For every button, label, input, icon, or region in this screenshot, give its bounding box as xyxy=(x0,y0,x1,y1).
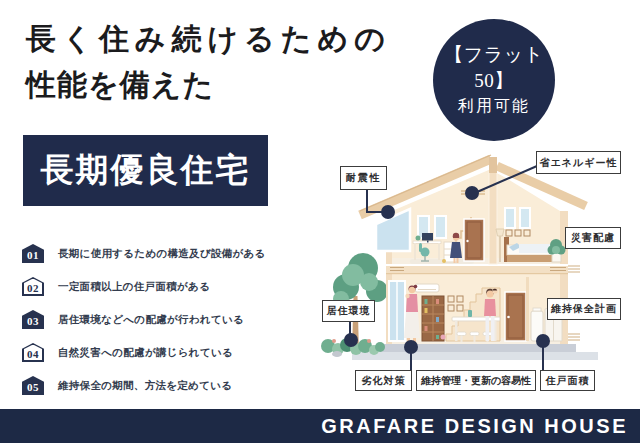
title-line-2: 性能を備えた xyxy=(26,62,391,108)
list-item: 04 自然災害への配慮が講じられている xyxy=(22,343,266,362)
flat50-circle-badge: 【フラット50】 利用可能 xyxy=(433,19,555,141)
brand-name: GRAFARE DESIGN HOUSE xyxy=(321,415,628,438)
list-item: 05 維持保全の期間、方法を定めている xyxy=(22,376,266,395)
feature-text: 一定面積以上の住戸面積がある xyxy=(58,280,210,294)
ground-strip xyxy=(352,352,598,360)
label-living-environment: 居住環境 xyxy=(322,300,375,322)
label-energy-efficiency: 省エネルギー性 xyxy=(536,151,621,174)
feature-list: 01 長期に使用するための構造及び設備がある 02 一定面積以上の住戸面積がある… xyxy=(22,244,266,395)
list-item: 03 居住環境などへの配慮が行われている xyxy=(22,310,266,329)
flat50-line-2: 利用可能 xyxy=(458,94,530,118)
feature-text: 長期に使用するための構造及び設備がある xyxy=(58,247,266,261)
label-earthquake-resistance: 耐震性 xyxy=(340,166,387,190)
house-number-badge: 02 xyxy=(22,277,44,296)
footer-brand-bar: GRAFARE DESIGN HOUSE xyxy=(0,409,640,443)
title-line-1: 長く住み続けるための xyxy=(26,16,391,62)
main-title: 長く住み続けるための 性能を備えた xyxy=(26,16,391,108)
list-item: 01 長期に使用するための構造及び設備がある xyxy=(22,244,266,263)
house-number-badge: 04 xyxy=(22,343,44,362)
house-number-badge: 01 xyxy=(22,244,44,263)
poster: 長く住み続けるための 性能を備えた 【フラット50】 利用可能 長期優良住宅 0… xyxy=(0,0,640,443)
label-disaster-consideration: 災害配慮 xyxy=(565,227,621,249)
feature-text: 維持保全の期間、方法を定めている xyxy=(58,379,232,393)
feature-text: 居住環境などへの配慮が行われている xyxy=(58,313,244,327)
feature-text: 自然災害への配慮が講じられている xyxy=(58,346,233,360)
house-number-badge: 05 xyxy=(22,376,44,395)
label-dwelling-area: 住戸面積 xyxy=(540,370,595,391)
label-deterioration-measures: 劣化対策 xyxy=(355,370,412,391)
flat50-line-1: 【フラット50】 xyxy=(433,42,555,94)
label-ease-of-maintenance: 維持管理・更新の容易性 xyxy=(416,370,536,391)
house-number-badge: 03 xyxy=(22,310,44,329)
label-maintenance-plan: 維持保全計画 xyxy=(547,298,621,320)
list-item: 02 一定面積以上の住戸面積がある xyxy=(22,277,266,296)
banner-long-term-quality-housing: 長期優良住宅 xyxy=(23,135,268,206)
